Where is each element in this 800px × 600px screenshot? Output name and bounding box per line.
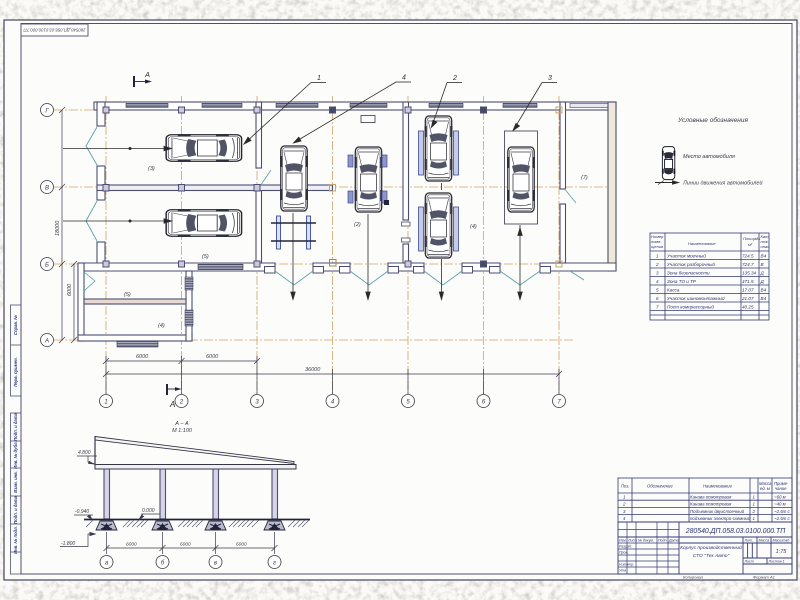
svg-text:Участок шиномонтажный: Участок шиномонтажный (667, 295, 725, 301)
svg-text:Канава осмотровая: Канава осмотровая (690, 502, 732, 507)
svg-text:щения: щения (651, 244, 664, 249)
svg-text:Подп.: Подп. (658, 539, 668, 543)
svg-text:Изм.: Изм. (619, 539, 627, 543)
svg-text:(5): (5) (202, 254, 209, 260)
svg-text:СТО "Тех Авто": СТО "Тех Авто" (693, 553, 730, 559)
svg-text:Участок моечный: Участок моечный (667, 253, 706, 259)
svg-text:280540.ДП.058.03.0100.000.ТП: 280540.ДП.058.03.0100.000.ТП (685, 528, 786, 535)
svg-text:Лист: Лист (744, 560, 754, 564)
svg-text:в: в (214, 561, 217, 567)
svg-text:Обозначение: Обозначение (647, 484, 673, 489)
svg-text:6000: 6000 (236, 542, 247, 548)
svg-text:Пост компрессорный: Пост компрессорный (667, 304, 714, 310)
svg-text:Наименование: Наименование (688, 241, 716, 246)
svg-text:Н.контр.: Н.контр. (619, 563, 634, 567)
svg-text:Лит.: Лит. (744, 539, 753, 543)
svg-text:подъемник электро-схемный: подъемник электро-схемный (690, 516, 751, 521)
svg-text:Перв. примен.: Перв. примен. (13, 357, 18, 387)
svg-text:2: 2 (752, 509, 756, 514)
svg-text:2: 2 (179, 400, 184, 406)
svg-text:Взам. инв.: Взам. инв. (13, 471, 18, 493)
svg-text:4: 4 (656, 279, 659, 284)
svg-text:1:75: 1:75 (776, 549, 788, 555)
svg-text:Разраб.: Разраб. (619, 545, 632, 549)
svg-text:17.07: 17.07 (742, 288, 754, 293)
svg-text:6: 6 (656, 296, 659, 301)
svg-text:2: 2 (452, 75, 457, 82)
svg-text:В4: В4 (761, 254, 767, 259)
svg-text:18000: 18000 (55, 220, 61, 236)
svg-text:А: А (169, 400, 175, 409)
svg-text:1: 1 (104, 400, 107, 406)
svg-text:чание: чание (775, 486, 787, 491)
svg-text:А – А: А – А (174, 421, 189, 427)
svg-text:135.34: 135.34 (742, 271, 756, 276)
svg-text:6000: 6000 (180, 542, 191, 548)
svg-text:г: г (273, 561, 276, 567)
svg-text:Масштаб: Масштаб (773, 539, 791, 543)
svg-text:0.000: 0.000 (142, 508, 155, 514)
svg-text:В: В (761, 262, 764, 267)
svg-text:Канава осмотровая: Канава осмотровая (690, 495, 732, 500)
svg-text:Подп. и дата: Подп. и дата (13, 495, 18, 523)
svg-text:В4: В4 (761, 288, 767, 293)
svg-text:1: 1 (317, 75, 321, 82)
svg-text:Площадь: Площадь (743, 236, 760, 241)
svg-text:А: А (144, 70, 150, 79)
svg-text:Зона ТО и ТР: Зона ТО и ТР (667, 279, 697, 284)
svg-text:5: 5 (656, 288, 659, 293)
svg-text:1: 1 (656, 254, 659, 259)
svg-text:Подп. и дата: Подп. и дата (13, 412, 18, 440)
svg-text:Справ. №: Справ. № (13, 315, 18, 335)
svg-text:6000: 6000 (67, 283, 73, 296)
svg-text:Наименование: Наименование (703, 484, 733, 489)
svg-text:~40 м: ~40 м (774, 502, 786, 507)
svg-text:6000: 6000 (136, 354, 149, 360)
svg-text:В: В (45, 186, 49, 192)
svg-text:Инв. № дубл.: Инв. № дубл. (13, 441, 18, 469)
svg-text:Линии движения автомобилей: Линии движения автомобилей (682, 180, 763, 187)
svg-text:Зона безопасности: Зона безопасности (667, 271, 710, 276)
svg-text:Корпус производственный: Корпус производственный (680, 544, 742, 551)
svg-text:Пров.: Пров. (619, 551, 628, 555)
svg-text:Листов 1: Листов 1 (768, 560, 785, 564)
svg-text:Место автомобиля: Место автомобиля (683, 154, 735, 160)
svg-text:-1.800: -1.800 (61, 541, 75, 547)
svg-text:~60 м: ~60 м (774, 495, 786, 500)
svg-text:724.5: 724.5 (742, 254, 754, 259)
svg-text:Копировал: Копировал (683, 575, 704, 580)
svg-text:(2): (2) (354, 222, 361, 228)
svg-text:Условные обозначения: Условные обозначения (677, 116, 748, 124)
svg-text:Б: Б (45, 263, 49, 269)
svg-text:7: 7 (656, 305, 659, 310)
svg-text:4.800: 4.800 (78, 450, 91, 456)
svg-text:3: 3 (656, 271, 659, 276)
svg-text:Касса: Касса (667, 288, 680, 293)
svg-text:опас.: опас. (761, 244, 771, 249)
svg-text:В4: В4 (761, 296, 767, 301)
svg-text:6000: 6000 (206, 354, 219, 360)
svg-text:21.07: 21.07 (741, 296, 754, 301)
svg-text:(4): (4) (158, 323, 165, 329)
svg-text:М 1:100: М 1:100 (172, 428, 193, 434)
svg-text:-0.940: -0.940 (75, 509, 89, 515)
svg-text:А: А (44, 339, 49, 345)
svg-text:Дата: Дата (668, 539, 678, 543)
svg-text:~2.5т с: ~2.5т с (774, 516, 791, 521)
svg-text:№ докум.: № докум. (638, 539, 654, 543)
svg-text:6000: 6000 (126, 542, 137, 548)
svg-text:280540.ДП.058.03.0100.000.ТП: 280540.ДП.058.03.0100.000.ТП (23, 27, 87, 32)
svg-text:471.5: 471.5 (742, 279, 754, 284)
svg-text:3: 3 (548, 75, 552, 82)
svg-text:4: 4 (402, 75, 406, 82)
svg-text:Лист: Лист (627, 539, 637, 543)
svg-text:(4): (4) (470, 224, 477, 230)
svg-text:724.7: 724.7 (742, 262, 754, 267)
svg-text:36000: 36000 (305, 367, 321, 373)
svg-text:(3): (3) (148, 166, 155, 172)
svg-text:Участок разборочный: Участок разборочный (667, 261, 715, 267)
svg-text:(7): (7) (581, 175, 588, 181)
svg-text:2: 2 (622, 502, 626, 507)
svg-text:40.25: 40.25 (742, 305, 754, 310)
svg-text:м²: м² (748, 242, 753, 247)
svg-text:(5): (5) (124, 292, 131, 298)
svg-text:2: 2 (655, 262, 659, 267)
svg-text:Масса: Масса (759, 539, 770, 543)
svg-text:Подъемник двухстоечный: Подъемник двухстоечный (690, 509, 745, 514)
svg-text:Утв.: Утв. (619, 569, 627, 573)
svg-text:~2.5т с: ~2.5т с (774, 509, 791, 514)
svg-text:ед. м: ед. м (760, 486, 770, 491)
svg-text:Формат А1: Формат А1 (753, 575, 775, 580)
svg-text:Инв. № подл.: Инв. № подл. (13, 526, 18, 554)
svg-text:Поз.: Поз. (621, 484, 629, 489)
